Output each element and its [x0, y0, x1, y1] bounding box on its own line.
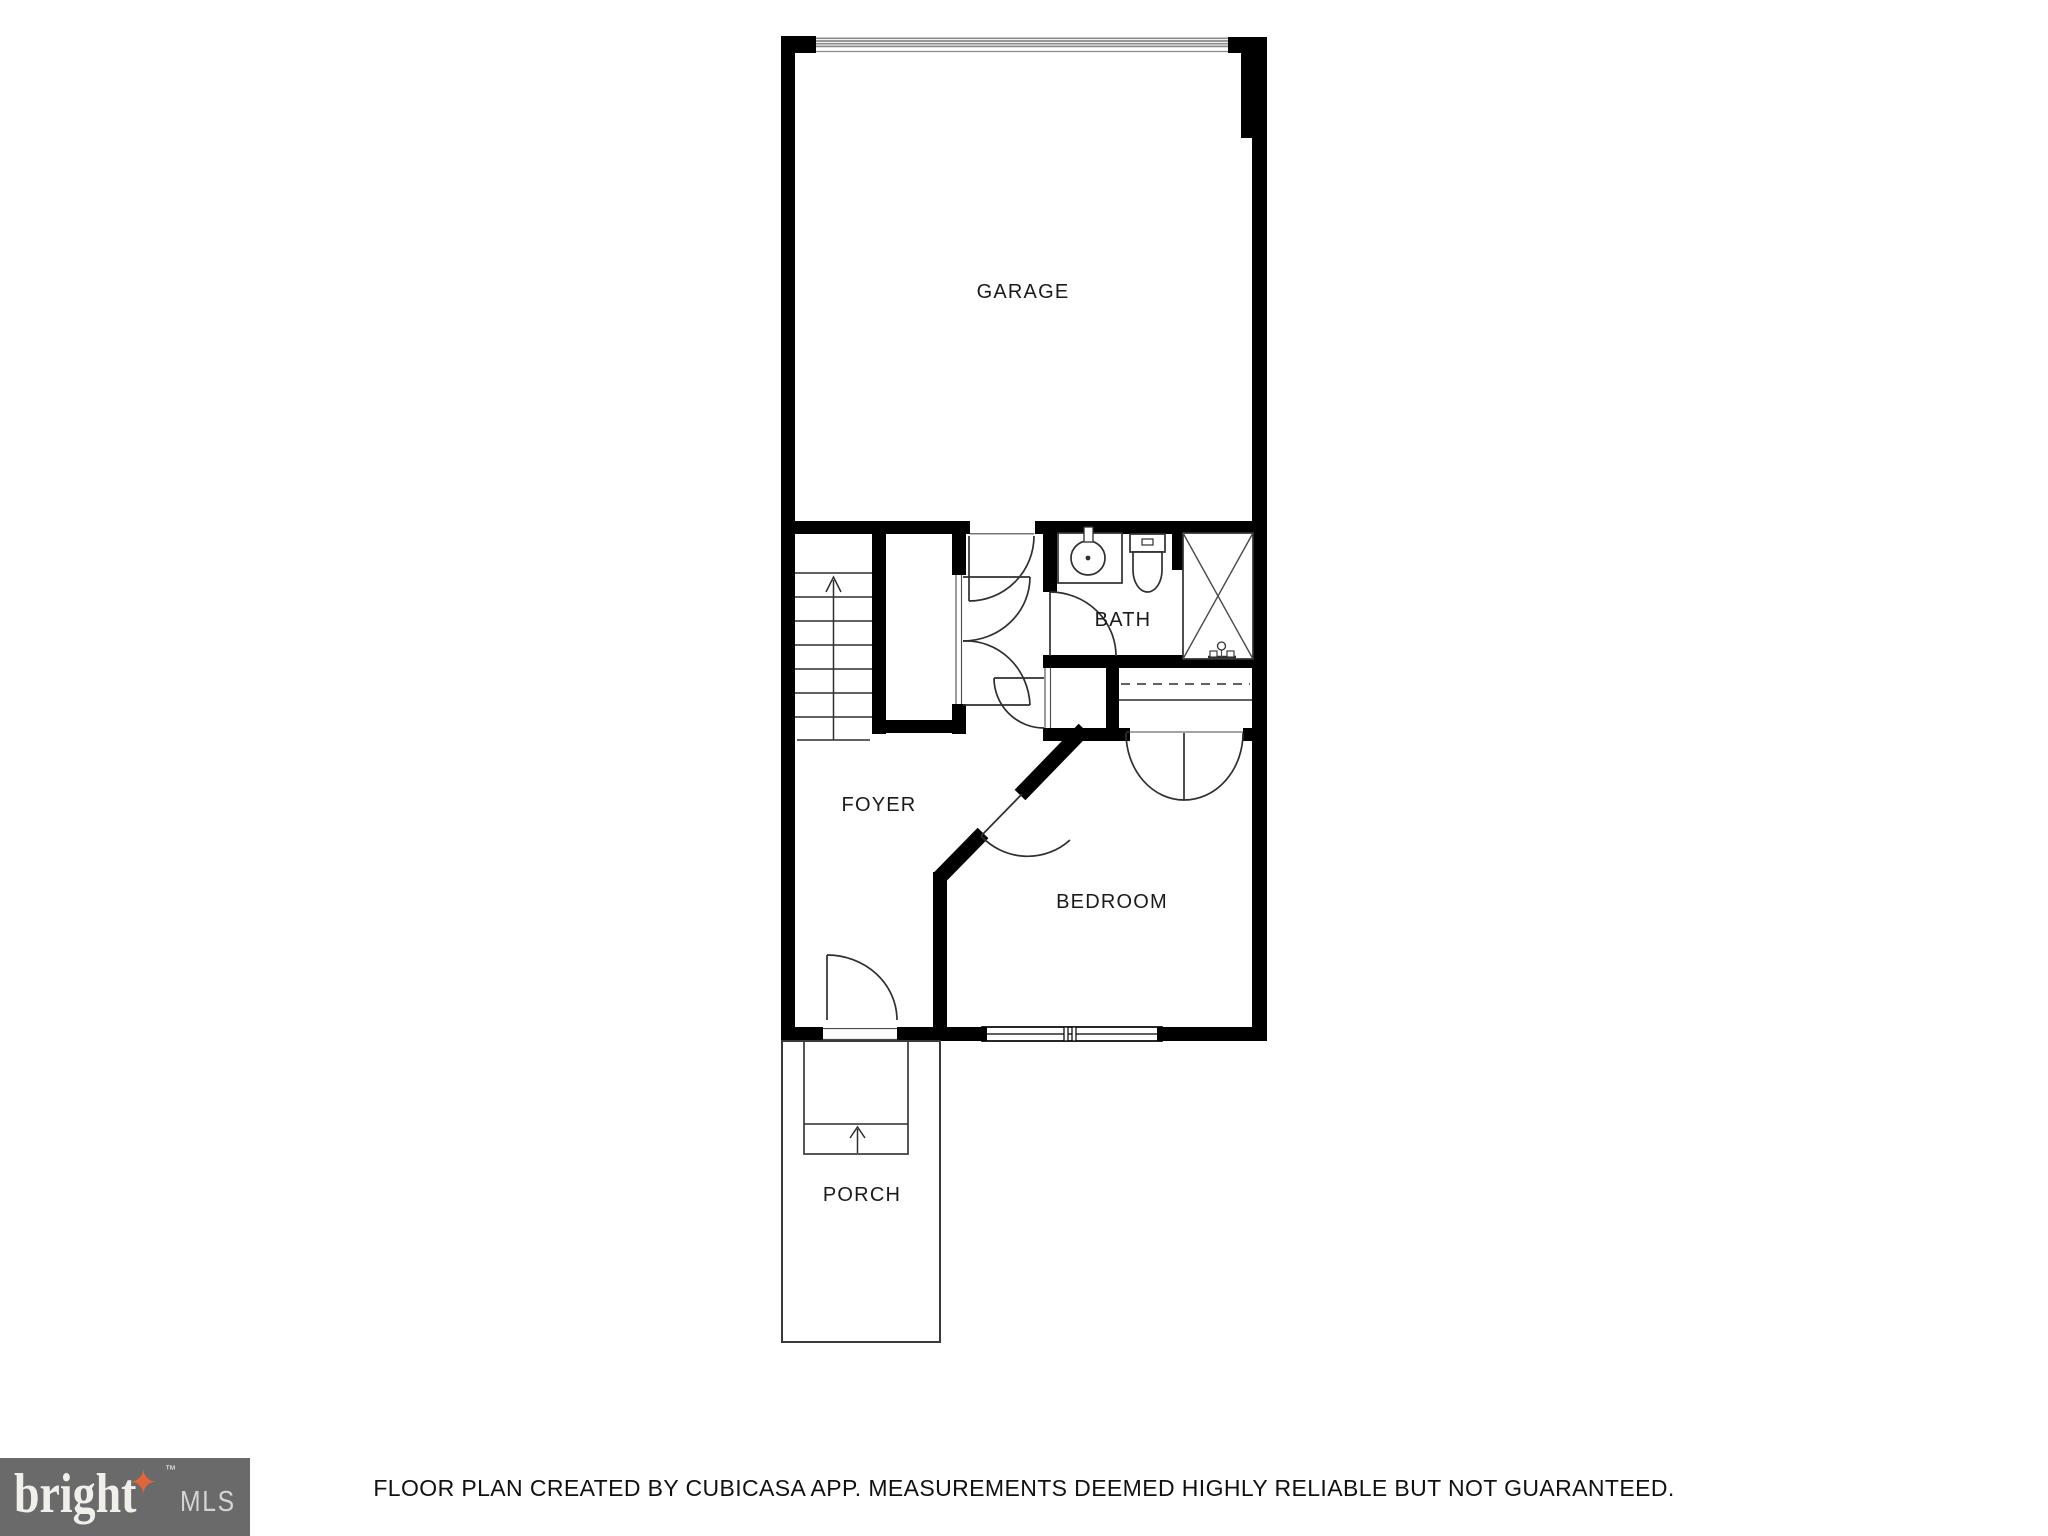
bedroom-closet — [1119, 684, 1252, 800]
toilet-shower-divider — [1172, 534, 1183, 570]
bottom-wall-left — [781, 1027, 823, 1041]
room-labels: GARAGE BATH FOYER BEDROOM PORCH — [823, 281, 1168, 1206]
logo-brand-text: bright — [14, 1464, 136, 1524]
closet-right-wall-top — [952, 534, 966, 575]
right-wall-column — [1241, 53, 1267, 138]
bedroom-window — [982, 1027, 1162, 1041]
bath-fixtures — [1058, 527, 1253, 659]
floor-plan-page: GARAGE BATH FOYER BEDROOM PORCH FLOOR PL… — [0, 0, 2048, 1536]
logo-suffix-text: MLS — [180, 1488, 236, 1517]
hall-foyer-door-arc — [994, 678, 1044, 728]
closet-door-arc-top — [963, 577, 1030, 641]
toilet-button-icon — [1142, 539, 1153, 545]
room-label-garage: GARAGE — [977, 281, 1070, 303]
bath-left-wall — [1043, 521, 1057, 592]
doors — [823, 534, 1116, 1040]
right-exterior-wall — [1252, 138, 1267, 1041]
garage-bottom-wall-left — [795, 521, 970, 534]
staircase — [795, 573, 872, 740]
garage-door-icon — [816, 38, 1228, 51]
sink-drain-icon — [1086, 556, 1091, 561]
disclaimer-text: FLOOR PLAN CREATED BY CUBICASA APP. MEAS… — [0, 1475, 2048, 1502]
room-label-bath: BATH — [1095, 609, 1152, 631]
foyer-bedroom-wall — [933, 872, 947, 1041]
garage-bottom-wall-right — [1035, 521, 1252, 534]
porch-steps — [804, 1041, 908, 1154]
sink-faucet-icon — [1084, 527, 1093, 542]
top-left-wall-block — [781, 36, 816, 53]
bright-mls-logo: bright ✦ ™ MLS — [0, 1458, 250, 1536]
bedroom-door-arc — [981, 836, 1070, 856]
bottom-wall-right — [1162, 1027, 1267, 1041]
logo-trademark: ™ — [165, 1464, 176, 1476]
top-right-wall-bar — [1228, 37, 1267, 53]
closet-double-door-arc-left — [1126, 733, 1184, 800]
logo-star-icon: ✦ — [129, 1466, 158, 1500]
window-mullion — [1072, 1027, 1076, 1041]
entry-door-arc — [827, 955, 897, 1020]
room-label-bedroom: BEDROOM — [1056, 891, 1168, 913]
garage-entry-door-arc — [969, 536, 1034, 601]
toilet-bowl-icon — [1133, 552, 1162, 592]
left-exterior-wall — [781, 36, 795, 1041]
window-mullion — [1064, 1027, 1068, 1041]
bedroom-closet-right-jamb — [1243, 728, 1267, 741]
shower-handle-icon — [1218, 642, 1226, 650]
closet-bottom-wall — [872, 720, 966, 733]
floor-plan-canvas: GARAGE BATH FOYER BEDROOM PORCH — [0, 0, 2048, 1536]
bedroom-door-leaf — [981, 794, 1022, 836]
room-label-porch: PORCH — [823, 1184, 901, 1206]
stair-right-wall — [872, 534, 886, 734]
room-label-foyer: FOYER — [842, 794, 917, 816]
closet-double-door-arc-right — [1184, 733, 1243, 800]
